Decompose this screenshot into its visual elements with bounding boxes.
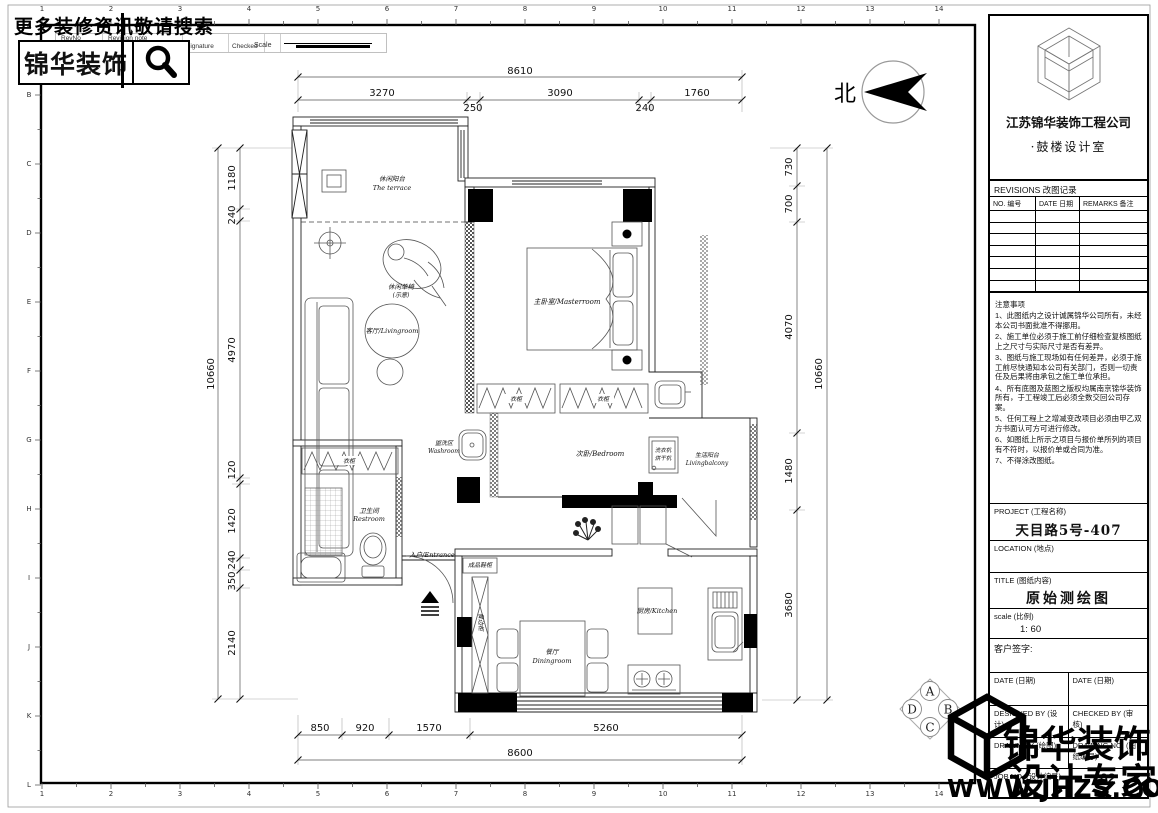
client-sign-label: 客户签字: xyxy=(990,639,1147,658)
scale-value: 1: 60 xyxy=(990,624,1147,635)
revision-row xyxy=(990,257,1147,269)
room-label-balcony-cn: 生活阳台 xyxy=(695,451,720,459)
grid-number-bottom: 10 xyxy=(659,790,668,798)
revisions-title: REVISIONS 改图记录 xyxy=(990,181,1147,197)
note-item: 6、如图纸上所示之项目与报价单所列的项目有不符时，以报价单或合同为准。 xyxy=(995,435,1142,455)
dim-label: 3090 xyxy=(547,88,572,99)
room-label-wardrobe: 衣柜 xyxy=(343,457,356,465)
project-section: PROJECT (工程名称) 天目路5号-407 xyxy=(990,503,1147,540)
grid-number-top: 7 xyxy=(454,5,458,13)
ref-letter-a: A xyxy=(925,685,935,699)
grid-number-bottom: 6 xyxy=(385,790,390,798)
plan-walls xyxy=(292,117,757,712)
brand-logo-text: 锦华装饰 xyxy=(20,42,134,83)
dim-label: 10660 xyxy=(814,358,825,390)
company-department: ·鼓楼设计室 xyxy=(990,138,1147,155)
room-label-wardrobe: 衣柜 xyxy=(597,395,610,403)
dim-label: 1180 xyxy=(227,165,238,190)
dimensions-right: 730 700 4070 1480 3680 10660 xyxy=(762,145,833,704)
dim-label: 3680 xyxy=(784,592,795,617)
grid-letter: D xyxy=(26,229,31,237)
room-label-lounge-note: (示意) xyxy=(393,291,410,299)
revision-row xyxy=(990,269,1147,281)
grid-letter: F xyxy=(27,367,31,375)
dim-label: 730 xyxy=(784,157,795,176)
room-label-restroom-en: Restroom xyxy=(352,515,385,523)
revision-row xyxy=(990,211,1147,223)
grid-number-bottom: 9 xyxy=(592,790,596,798)
rev-col-remarks: REMARKS 备注 xyxy=(1080,197,1147,210)
scale-label: scale (比例) xyxy=(990,609,1147,624)
grid-letter: J xyxy=(27,643,30,651)
revision-row xyxy=(990,223,1147,235)
note-item: 4、所有底图及蓝图之版权均属南京锦华装饰所有，于工程竣工后必须全数交回公司存案。 xyxy=(995,384,1142,413)
title-block-logo-section: 江苏锦华装饰工程公司 ·鼓楼设计室 xyxy=(990,16,1147,179)
room-label-washroom-cn: 盥洗区 xyxy=(435,439,454,447)
grid-number-bottom: 7 xyxy=(454,790,458,798)
dim-label: 850 xyxy=(310,723,329,734)
dim-label: 350 xyxy=(227,571,238,590)
dim-label: 5260 xyxy=(593,723,618,734)
grid-number-top: 9 xyxy=(592,5,596,13)
grid-number-bottom: 3 xyxy=(178,790,182,798)
dim-label: 120 xyxy=(227,460,238,479)
dim-label: 250 xyxy=(463,103,482,114)
dim-label: 8610 xyxy=(507,66,532,77)
grid-letter: B xyxy=(27,91,32,99)
rev-col-date: DATE 日期 xyxy=(1036,197,1080,210)
date-label-1: DATE (日期) xyxy=(990,673,1068,688)
dim-label: 4970 xyxy=(227,337,238,362)
grid-letter: K xyxy=(27,712,32,720)
dim-label: 1760 xyxy=(684,88,709,99)
notes-title: 注意事项 xyxy=(995,300,1142,310)
note-item: 1、此图纸内之设计诚属锦华公司所有，未经本公司书面批准不得挪用。 xyxy=(995,311,1142,331)
grid-letter: L xyxy=(27,781,31,789)
drawing-title-label: TITLE (图纸内容) xyxy=(990,573,1147,588)
note-item: 3、图纸与施工现场如有任何差异，必须于施工前尽快通知本公司有关部门，否则一切责任… xyxy=(995,353,1142,382)
grid-number-bottom: 5 xyxy=(316,790,320,798)
dim-label: 8600 xyxy=(507,748,532,759)
brand-logo-box: 锦华装饰 xyxy=(18,40,190,85)
room-label-dining-cn: 餐厅 xyxy=(546,648,561,656)
dim-label: 700 xyxy=(784,194,795,213)
dim-label: 1480 xyxy=(784,458,795,483)
grid-number-top: 12 xyxy=(797,5,806,13)
notes-section: 注意事项 1、此图纸内之设计诚属锦华公司所有，未经本公司书面批准不得挪用。 2、… xyxy=(990,291,1147,503)
note-item: 5、任何工程上之增减变改项目必须由甲乙双方书面认可方可进行修改。 xyxy=(995,414,1142,434)
room-label-terrace-en: The terrace xyxy=(373,184,412,192)
grid-number-bottom: 2 xyxy=(109,790,113,798)
grid-labels: 1 2 3 4 5 6 7 8 9 10 11 12 13 14 1 2 3 4… xyxy=(26,5,944,798)
dim-label: 920 xyxy=(355,723,374,734)
note-item: 7、不得涂改图纸。 xyxy=(995,456,1142,466)
revisions-section: REVISIONS 改图记录 NO. 编号 DATE 日期 REMARKS 备注 xyxy=(990,179,1147,291)
drawing-title-value: 原始测绘图 xyxy=(990,588,1147,608)
dimensions-top: 8610 3270 250 3090 240 1760 xyxy=(295,66,746,114)
room-label-lounge-cn: 休闲单椅 xyxy=(388,283,416,291)
room-label-washer: 洗衣机 xyxy=(655,447,672,454)
dim-label: 2140 xyxy=(227,630,238,655)
ref-letter-c: C xyxy=(925,721,934,735)
dim-label: 240 xyxy=(635,103,654,114)
room-label-entrance: 入户/Entrance xyxy=(409,551,455,559)
grid-letter: E xyxy=(27,298,31,306)
magnifier-cell xyxy=(134,42,188,83)
rev-col-no: NO. 编号 xyxy=(990,197,1036,210)
grid-number-top: 10 xyxy=(659,5,668,13)
location-label: LOCATION (地点) xyxy=(990,541,1147,556)
company-cube-logo-icon xyxy=(1032,24,1106,106)
drawing-title-section: TITLE (图纸内容) 原始测绘图 xyxy=(990,572,1147,608)
revisions-header-row: NO. 编号 DATE 日期 REMARKS 备注 xyxy=(990,197,1147,211)
title-block: 江苏锦华装饰工程公司 ·鼓楼设计室 REVISIONS 改图记录 NO. 编号 … xyxy=(988,14,1149,799)
room-label-restroom-cn: 卫生间 xyxy=(359,507,380,515)
ref-letter-d: D xyxy=(907,703,917,717)
scale-section: scale (比例) 1: 60 xyxy=(990,608,1147,638)
room-label-terrace-cn: 休闲阳台 xyxy=(379,175,406,183)
grid-number-bottom: 4 xyxy=(247,790,252,798)
date-label-2: DATE (日期) xyxy=(1069,673,1148,688)
grid-number-top: 13 xyxy=(866,5,875,13)
frame-grid-line xyxy=(121,13,124,88)
grid-letter: G xyxy=(26,436,31,444)
grid-number-top: 14 xyxy=(935,5,944,13)
room-label-living: 客厅/Livingroom xyxy=(366,327,419,335)
note-item: 2、施工单位必须于施工前仔细检查复核图纸上之尺寸与实际尺寸是否有差异。 xyxy=(995,332,1142,352)
room-label-balcony-en: Livingbalcony xyxy=(685,460,729,467)
revision-row xyxy=(990,246,1147,258)
project-label: PROJECT (工程名称) xyxy=(990,504,1147,519)
room-label-master: 主卧室/Masterroom xyxy=(533,298,600,306)
grid-number-bottom: 14 xyxy=(935,790,944,798)
room-label-washroom-en: Washroom xyxy=(428,448,460,455)
grid-number-bottom: 1 xyxy=(40,790,44,798)
dim-label: 1420 xyxy=(227,508,238,533)
room-label-dining-en: Diningroom xyxy=(532,657,572,665)
grid-number-top: 5 xyxy=(316,5,320,13)
grid-number-top: 6 xyxy=(385,5,390,13)
north-label: 北 xyxy=(834,82,856,107)
room-label-kitchen: 厨房/Kitchen xyxy=(637,607,678,615)
grid-letter: H xyxy=(26,505,31,513)
revision-row xyxy=(990,281,1147,293)
room-label-sideboard: 餐边柜 xyxy=(477,613,485,632)
dim-label: 240 xyxy=(227,550,238,569)
grid-number-bottom: 13 xyxy=(866,790,875,798)
project-value: 天目路5号-407 xyxy=(990,519,1147,539)
plant xyxy=(574,518,601,541)
room-label-wardrobe: 衣柜 xyxy=(510,395,523,403)
room-label-dryer: 烘干机 xyxy=(655,455,672,462)
grid-letter: C xyxy=(27,160,32,168)
room-labels: 休闲阳台 The terrace 休闲单椅 (示意) 客厅/Livingroom… xyxy=(343,175,729,665)
grid-number-bottom: 8 xyxy=(523,790,527,798)
drawing-sheet: { "banner": {"text": "更多装修资讯敬请搜索"}, "log… xyxy=(0,0,1158,813)
client-sign-section: 客户签字: xyxy=(990,638,1147,672)
revision-row xyxy=(990,234,1147,246)
plan-furniture xyxy=(297,170,743,696)
grid-letter: I xyxy=(28,574,30,582)
dimensions-bottom: 850 920 1570 5260 8600 xyxy=(295,715,746,765)
room-label-bedroom2: 次卧/Bedroom xyxy=(576,450,625,458)
search-banner: 更多装修资讯敬请搜索 xyxy=(14,12,214,39)
search-icon xyxy=(143,45,179,81)
north-arrow: 北 xyxy=(834,61,927,123)
grid-number-top: 4 xyxy=(247,5,252,13)
dim-label: 4070 xyxy=(784,314,795,339)
location-section: LOCATION (地点) xyxy=(990,540,1147,572)
company-name: 江苏锦华装饰工程公司 xyxy=(990,112,1147,131)
grid-number-top: 11 xyxy=(728,5,737,13)
room-label-shoe-cabinet: 成品鞋柜 xyxy=(468,561,493,569)
watermark-url: WWW.JHZS.COM xyxy=(947,774,1158,803)
dim-label: 1570 xyxy=(416,723,441,734)
dimensions-left: 1180 240 4970 120 1420 240 350 2140 1066… xyxy=(206,145,298,703)
dim-label: 10660 xyxy=(206,358,217,390)
dim-label: 240 xyxy=(227,205,238,224)
dim-label: 3270 xyxy=(369,88,394,99)
grid-number-top: 8 xyxy=(523,5,527,13)
grid-number-bottom: 11 xyxy=(728,790,737,798)
grid-number-bottom: 12 xyxy=(797,790,806,798)
